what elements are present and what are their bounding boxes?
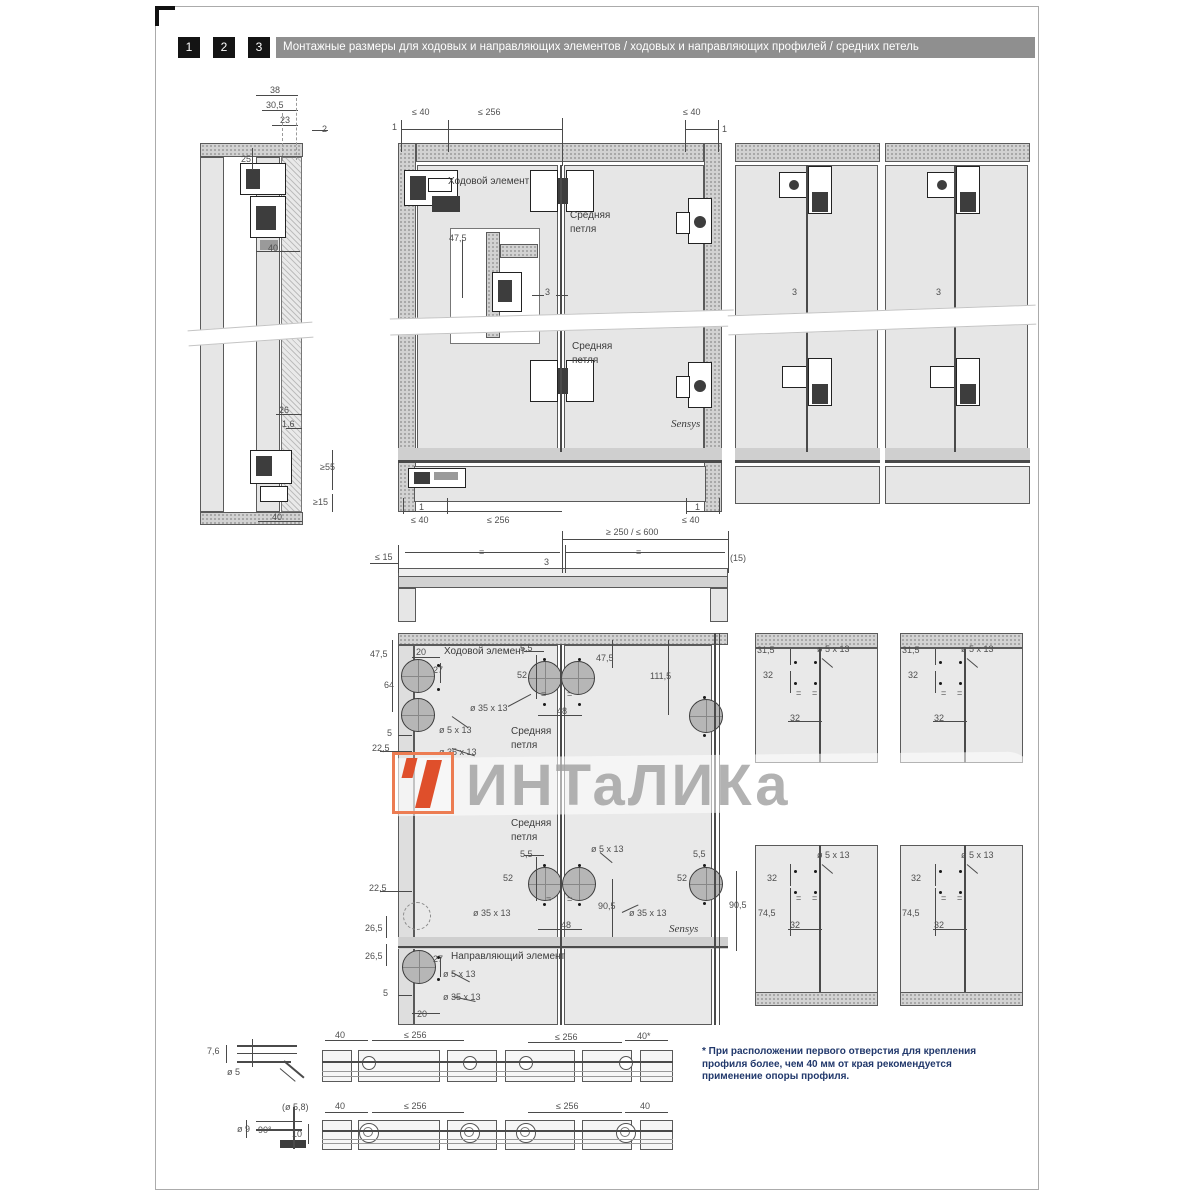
dim-line	[272, 125, 298, 126]
dim-label: 5,5	[520, 849, 533, 859]
dim-label: =	[541, 689, 546, 699]
dim-label: 32	[934, 920, 944, 930]
dim-label: 48	[561, 920, 571, 930]
screw-mark	[437, 688, 440, 691]
dim-label: 40	[335, 1101, 345, 1111]
screw-mark	[578, 703, 581, 706]
dim-line	[736, 871, 737, 951]
bottom-rail-line	[885, 460, 1030, 463]
hardware-part	[812, 384, 828, 404]
brand-logo-icon	[392, 752, 454, 814]
dim-label: 20	[417, 1009, 427, 1019]
hardware-part	[434, 472, 458, 480]
profile-line	[252, 1039, 253, 1067]
dim-label: 26,5	[365, 951, 383, 961]
dim-label: 22,5	[372, 743, 390, 753]
dim-line	[685, 129, 718, 130]
dim-label: (15)	[730, 553, 746, 563]
bottom-board	[755, 992, 878, 1006]
dim-line	[532, 295, 544, 296]
dim-label: петля	[572, 356, 598, 366]
hardware-part	[414, 472, 430, 484]
dim-label: ø 35 x 13	[470, 703, 508, 713]
profile-line	[237, 1053, 297, 1054]
screw-mark	[437, 978, 440, 981]
dim-label: ≥ 250 / ≤ 600	[606, 527, 658, 537]
side-wall	[710, 588, 728, 622]
dim-label: 48	[557, 706, 567, 716]
dim-line	[403, 511, 447, 512]
dim-line	[935, 864, 936, 886]
profile-line	[256, 1121, 302, 1122]
dim-label: 40	[272, 512, 282, 522]
profile-line	[322, 1076, 673, 1077]
top-board	[735, 143, 880, 162]
dim-label: 40	[335, 1030, 345, 1040]
dim-line	[392, 640, 393, 666]
mount-hole	[460, 1123, 480, 1143]
dim-line	[325, 1112, 368, 1113]
tab-3: 3	[248, 37, 270, 58]
dim-line	[256, 95, 298, 96]
dim-label: 30,5	[266, 100, 284, 110]
hardware-part	[432, 196, 460, 212]
top-board	[885, 143, 1030, 162]
screw-mark	[543, 703, 546, 706]
dim-label: 52	[503, 873, 513, 883]
dim-label: ø 5 x 13	[961, 644, 994, 654]
hardware-part	[960, 384, 976, 404]
dim-label: ≤ 15	[375, 552, 392, 562]
dim-label: 26	[279, 405, 289, 415]
hardware-part	[246, 169, 260, 189]
label-middle-hinge-4: Средняя	[511, 819, 551, 829]
dim-label: ø 35 x 13	[629, 908, 667, 918]
dim-line	[332, 494, 333, 512]
dim-label: 20	[416, 647, 426, 657]
profile-segment	[322, 1050, 352, 1082]
dim-line	[538, 929, 582, 930]
dim-label: 40*	[637, 1031, 651, 1041]
dim-line	[686, 498, 687, 514]
drill-hole-35	[689, 699, 723, 733]
running-element	[566, 170, 594, 212]
hinge-cup	[694, 216, 706, 228]
dim-label: 111,5	[650, 671, 671, 681]
dim-label: 40	[268, 243, 278, 253]
dim-line	[536, 655, 537, 699]
dim-label: ≤ 256	[556, 1101, 578, 1111]
door-gap	[964, 648, 966, 763]
dim-line	[718, 120, 719, 152]
dim-line	[398, 995, 412, 996]
dim-label: 3	[936, 287, 941, 297]
bottom-rail-line	[735, 460, 880, 463]
dim-label: =	[546, 894, 551, 904]
panel	[900, 845, 1023, 1006]
drill-hole-optional	[403, 902, 431, 930]
door-gap	[806, 165, 808, 452]
mount-hole	[362, 1056, 376, 1070]
dim-line	[935, 671, 936, 693]
dim-line	[403, 498, 404, 514]
dim-line	[252, 148, 253, 170]
dim-label: 32	[790, 920, 800, 930]
label-middle-hinge-2: Средняя	[572, 342, 612, 352]
footnote-line: * При расположении первого отверстия для…	[702, 1046, 1012, 1059]
dim-label: 5,5	[693, 849, 706, 859]
dim-label: =	[812, 688, 817, 698]
hardware-part	[256, 456, 272, 476]
dim-label: 47,5	[370, 649, 388, 659]
footnote: * При расположении первого отверстия для…	[702, 1046, 1012, 1084]
dim-label: 32	[767, 873, 777, 883]
dim-label: 90,5	[729, 900, 747, 910]
drill-hole-35	[401, 659, 435, 693]
dim-line	[565, 552, 725, 553]
dim-line	[398, 545, 399, 573]
dim-line	[262, 110, 298, 111]
profile-segment	[640, 1050, 673, 1082]
dim-label: 74,5	[758, 908, 776, 918]
dim-label: =	[941, 688, 946, 698]
dim-line	[562, 118, 563, 166]
dim-label: ø 5 x 13	[961, 850, 994, 860]
bottom-rail-line	[398, 460, 722, 463]
hinge-cup	[789, 180, 799, 190]
screw-mark	[578, 658, 581, 661]
footnote-line: профиля более, чем 40 мм от края рекомен…	[702, 1059, 1012, 1072]
dim-line	[790, 671, 791, 693]
section-title: Монтажные размеры для ходовых и направля…	[276, 37, 1035, 58]
dim-line	[565, 545, 566, 573]
dim-label: ≤ 40	[683, 107, 700, 117]
dim-label: ≤ 256	[555, 1032, 577, 1042]
dim-label: 5	[383, 988, 388, 998]
dim-label: 23	[280, 115, 290, 125]
profile-line	[322, 1061, 673, 1063]
dim-label: =	[957, 688, 962, 698]
hardware-part	[410, 176, 426, 200]
mount-hole	[619, 1056, 633, 1070]
dim-label: 1	[419, 502, 424, 512]
hinge-arm	[676, 212, 690, 234]
dim-line	[935, 649, 936, 665]
dim-label: 5	[387, 728, 392, 738]
dim-line	[372, 1112, 464, 1113]
label-middle-hinge-3: Средняя	[511, 727, 551, 737]
dim-line	[447, 511, 562, 512]
dim-label: =	[567, 689, 572, 699]
screw-mark	[703, 696, 706, 699]
dim-line	[398, 735, 412, 736]
dim-label: =	[636, 547, 641, 557]
dim-label: =	[567, 894, 572, 904]
dim-label: ø 5 x 13	[817, 850, 850, 860]
hardware-part	[812, 192, 828, 212]
door-gap	[560, 645, 562, 1025]
dim-label: ≤ 256	[487, 515, 509, 525]
dim-line	[401, 129, 448, 130]
dim-label: 32	[763, 670, 773, 680]
dim-line	[790, 649, 791, 665]
screw-mark	[703, 902, 706, 905]
dim-label: 3	[544, 557, 549, 567]
dim-label: 47,5	[449, 233, 467, 243]
dim-line	[562, 531, 563, 573]
drill-hole-35	[689, 867, 723, 901]
dim-label: 1	[392, 122, 397, 132]
dim-label: 2	[322, 124, 327, 134]
dim-line	[370, 563, 398, 564]
leader-line	[296, 98, 298, 160]
catalog-page: 1 2 3 Монтажные размеры для ходовых и на…	[0, 0, 1200, 1200]
dim-line	[719, 498, 720, 514]
dim-label: 90,5	[598, 901, 616, 911]
dim-label: 31,5	[757, 645, 775, 655]
mount-hole	[359, 1123, 379, 1143]
dim-label: 1	[695, 502, 700, 512]
dim-line	[556, 295, 568, 296]
dim-label: 74,5	[902, 908, 920, 918]
dim-line	[562, 539, 728, 540]
dim-line	[372, 1040, 464, 1041]
screw-mark	[703, 864, 706, 867]
profile-segment	[322, 1120, 352, 1150]
bottom-rail-line	[398, 946, 728, 948]
label-running-element: Ходовой элемент	[448, 177, 529, 187]
dim-label: петля	[511, 741, 537, 751]
dim-label: ≤ 40	[411, 515, 428, 525]
dim-label: ≤ 256	[478, 107, 500, 117]
dim-line	[790, 864, 791, 886]
dim-label: 3	[545, 287, 550, 297]
profile-edge	[719, 633, 720, 1025]
dim-line	[386, 944, 387, 966]
door-right	[564, 645, 712, 1025]
dim-line	[462, 240, 463, 298]
dim-label: ≥15	[313, 497, 328, 507]
hinge-cup	[694, 380, 706, 392]
dim-label: ø 5 x 13	[439, 725, 472, 735]
dim-label: =	[796, 688, 801, 698]
dim-label: петля	[511, 833, 537, 843]
board-cross-section	[200, 512, 303, 525]
dim-label: 38	[270, 85, 280, 95]
dim-label: ø 5 x 13	[817, 644, 850, 654]
dim-label: 90°	[258, 1125, 272, 1135]
dim-line	[401, 120, 402, 152]
profile-edge	[714, 633, 716, 1025]
logo-bar	[402, 758, 418, 778]
hinge-cup	[937, 180, 947, 190]
dim-label: 40	[640, 1101, 650, 1111]
dim-label: =	[479, 547, 484, 557]
panel	[755, 648, 878, 763]
dim-label: ø 35 x 13	[473, 908, 511, 918]
screw-mark	[543, 864, 546, 867]
dim-label: (ø 5,8)	[282, 1102, 309, 1112]
label-sensys: Sensys	[671, 419, 700, 429]
dim-label: 26,5	[365, 923, 383, 933]
door-bottom-strip	[885, 466, 1030, 504]
panel	[755, 845, 878, 1006]
inset-board	[500, 244, 538, 258]
dim-label: ≤ 40	[412, 107, 429, 117]
dim-label: 32	[790, 713, 800, 723]
hinge	[566, 360, 594, 402]
hardware-part	[498, 280, 512, 302]
top-board	[398, 633, 728, 645]
mount-hole	[463, 1056, 477, 1070]
label-guide-element: Направляющий элемент	[451, 952, 565, 962]
bottom-board	[900, 992, 1023, 1006]
drill-hole-35	[401, 698, 435, 732]
hardware-part	[260, 486, 288, 502]
profile-segment	[505, 1050, 575, 1082]
profile-line	[322, 1139, 673, 1140]
door-bottom-strip	[735, 466, 880, 504]
door-gap	[819, 845, 821, 992]
dim-label: ø 5 x 13	[591, 844, 624, 854]
dim-label: 10	[292, 1129, 302, 1139]
mount-hole	[519, 1056, 533, 1070]
mount-hole	[616, 1123, 636, 1143]
dim-label: 3	[792, 287, 797, 297]
profile-line	[322, 1130, 673, 1132]
hinge-arm	[930, 366, 956, 388]
top-board	[416, 143, 704, 162]
panel-top-view	[398, 576, 728, 588]
hinge-arm	[782, 366, 808, 388]
screw-mark	[578, 864, 581, 867]
hinge-arm	[676, 376, 690, 398]
dim-label: ø 5 x 13	[443, 969, 476, 979]
dim-label: ≤ 40	[682, 515, 699, 525]
dim-label: 7,6	[207, 1046, 220, 1056]
dim-line	[447, 498, 448, 514]
dim-label: 1	[722, 124, 727, 134]
dim-label: 52	[517, 670, 527, 680]
side-wall	[398, 588, 416, 622]
drill-hole-35	[528, 867, 562, 901]
profile-line	[293, 1107, 295, 1149]
dim-label: петля	[570, 225, 596, 235]
logo-bar	[415, 760, 442, 808]
tab-1: 1	[178, 37, 200, 58]
dim-line	[412, 657, 440, 658]
dim-label: 22,5	[369, 883, 387, 893]
door-gap	[819, 648, 821, 763]
dim-label: ≤ 256	[404, 1030, 426, 1040]
dim-label: =	[941, 893, 946, 903]
dim-label: 27	[433, 954, 443, 964]
dim-label: ≤ 256	[404, 1101, 426, 1111]
dim-label: 52	[677, 873, 687, 883]
dim-line	[386, 916, 387, 938]
screw-mark	[578, 903, 581, 906]
dim-label: 27	[433, 665, 443, 675]
dim-line	[728, 531, 729, 573]
hardware-part	[256, 206, 276, 230]
dim-label: ø 9	[237, 1124, 250, 1134]
hardware-part	[960, 192, 976, 212]
dim-label: 5,5	[520, 643, 533, 653]
screw-mark	[543, 658, 546, 661]
dim-label: 1,6	[282, 419, 295, 429]
running-element	[530, 170, 558, 212]
dim-line	[325, 1040, 368, 1041]
dim-label: 32	[911, 873, 921, 883]
profile-line	[322, 1143, 673, 1144]
dim-label: =	[796, 893, 801, 903]
dim-line	[528, 1042, 622, 1043]
label-running-element-2: Ходовой элемент	[444, 647, 525, 657]
dim-line	[536, 857, 537, 901]
dim-label: =	[957, 893, 962, 903]
dim-line	[448, 120, 449, 152]
watermark-brand-text: ИНТаЛИКа	[466, 752, 791, 819]
dim-label: ø 5	[227, 1067, 240, 1077]
dim-line	[308, 1124, 309, 1144]
dim-label: =	[812, 893, 817, 903]
door-gap	[964, 845, 966, 992]
dim-label: 32	[908, 670, 918, 680]
dim-label: 31,5	[902, 645, 920, 655]
mount-hole	[516, 1123, 536, 1143]
dim-label: 47,5	[596, 653, 614, 663]
screw-mark	[703, 734, 706, 737]
door-gap	[560, 165, 562, 452]
hinge	[530, 360, 558, 402]
dim-label: 25	[241, 154, 251, 164]
dim-line	[625, 1112, 668, 1113]
dim-label: ≥55	[320, 462, 335, 472]
panel	[900, 648, 1023, 763]
dim-line	[685, 120, 686, 152]
tab-2: 2	[213, 37, 235, 58]
dim-line	[528, 1112, 622, 1113]
crop-mark	[155, 6, 159, 26]
dim-label: ø 35 x 13	[443, 992, 481, 1002]
profile-line	[322, 1071, 673, 1072]
footnote-line: применение опоры профиля.	[702, 1071, 1012, 1084]
dim-line	[226, 1045, 227, 1063]
profile-segment	[640, 1120, 673, 1150]
label-middle-hinge: Средняя	[570, 211, 610, 221]
drill-hole-35	[402, 950, 436, 984]
dim-line	[448, 129, 562, 130]
dim-line	[686, 511, 719, 512]
label-sensys-2: Sensys	[669, 924, 698, 934]
profile-line	[237, 1045, 297, 1047]
dim-label: 32	[934, 713, 944, 723]
dim-label: 64	[384, 680, 394, 690]
